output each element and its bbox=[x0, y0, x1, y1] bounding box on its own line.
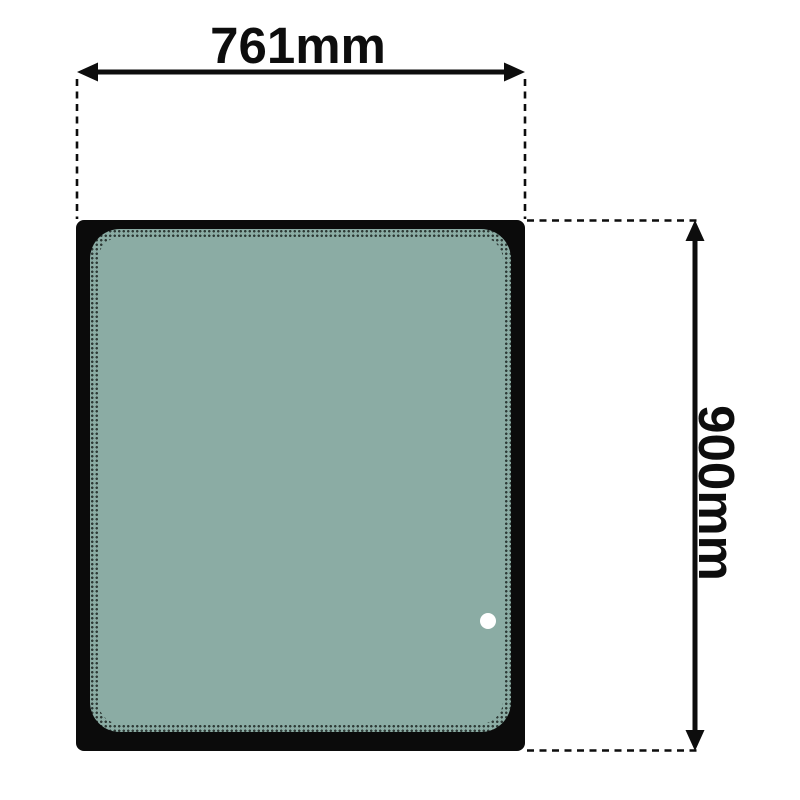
diagram-canvas: 761mm 900mm bbox=[0, 0, 800, 800]
glass-panel-frame bbox=[76, 220, 525, 751]
height-dimension-label: 900mm bbox=[688, 405, 744, 581]
glass-surface bbox=[98, 237, 503, 724]
width-dimension-label: 761mm bbox=[210, 18, 386, 74]
mounting-hole bbox=[480, 613, 496, 629]
